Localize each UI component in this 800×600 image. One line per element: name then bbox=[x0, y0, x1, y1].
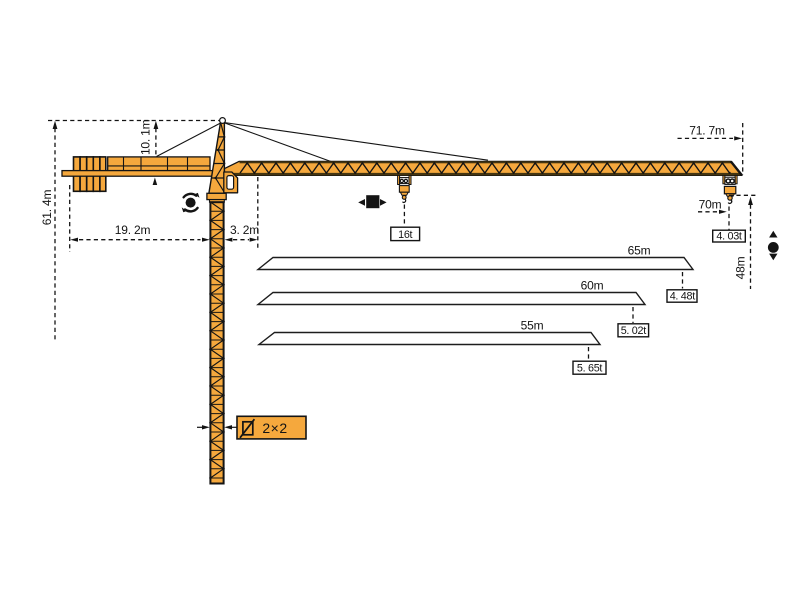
svg-text:70m: 70m bbox=[699, 198, 722, 212]
svg-text:5. 65t: 5. 65t bbox=[577, 362, 603, 374]
svg-text:65m: 65m bbox=[628, 244, 651, 258]
svg-text:4. 03t: 4. 03t bbox=[716, 231, 742, 243]
svg-text:71. 7m: 71. 7m bbox=[689, 124, 725, 138]
svg-text:19. 2m: 19. 2m bbox=[115, 223, 151, 237]
svg-text:5. 02t: 5. 02t bbox=[621, 325, 647, 337]
svg-text:3. 2m: 3. 2m bbox=[230, 223, 259, 237]
svg-text:61. 4m: 61. 4m bbox=[40, 190, 54, 226]
svg-text:4. 48t: 4. 48t bbox=[670, 291, 696, 303]
svg-text:2×2: 2×2 bbox=[262, 420, 287, 436]
svg-text:55m: 55m bbox=[521, 319, 544, 333]
svg-text:48m: 48m bbox=[734, 256, 748, 279]
svg-text:10. 1m: 10. 1m bbox=[138, 119, 152, 155]
svg-text:16t: 16t bbox=[398, 229, 412, 241]
svg-text:60m: 60m bbox=[581, 279, 604, 293]
